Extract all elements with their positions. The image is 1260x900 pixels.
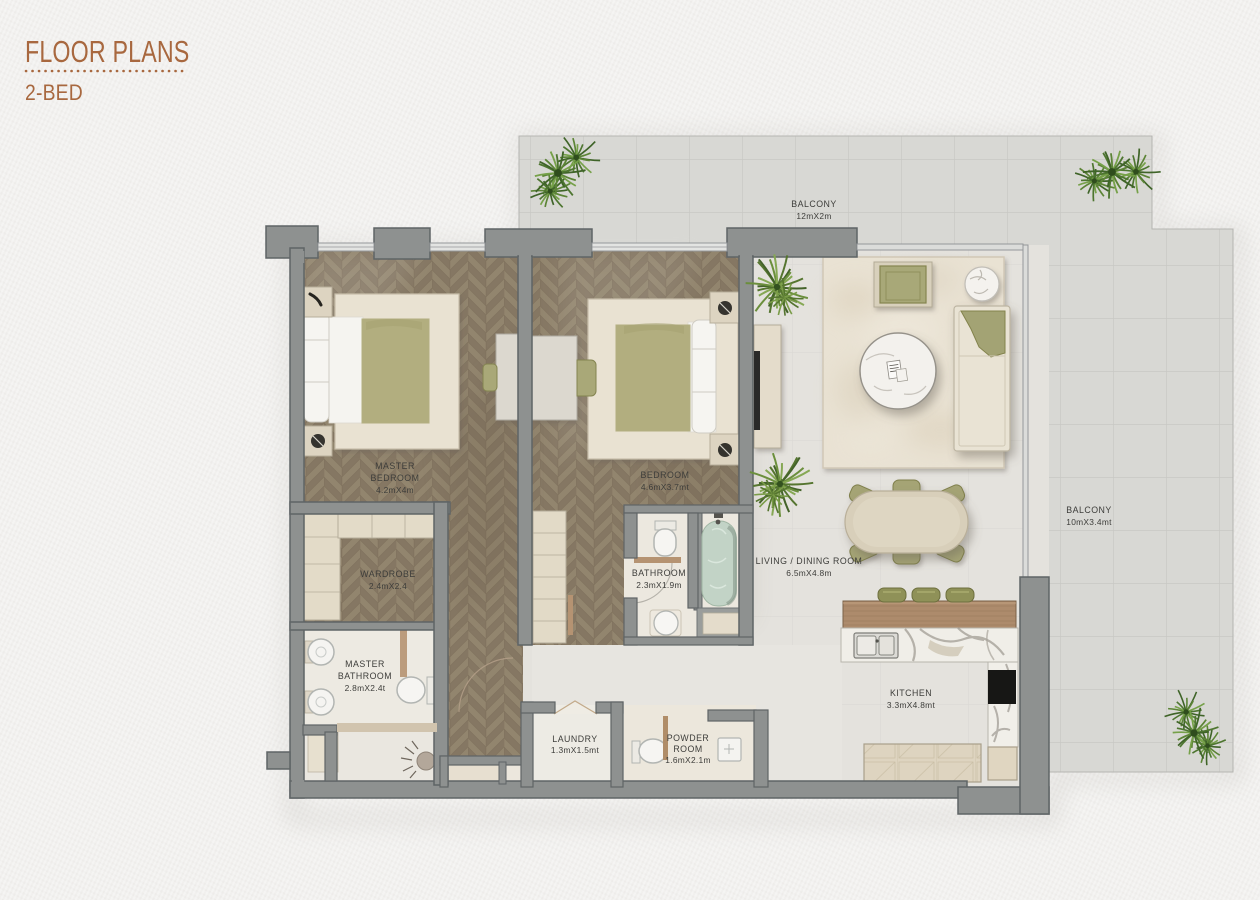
svg-text:6.5mX4.8m: 6.5mX4.8m — [786, 568, 832, 578]
svg-text:1.3mX1.5mt: 1.3mX1.5mt — [551, 745, 600, 755]
svg-text:MASTER: MASTER — [375, 461, 415, 471]
svg-text:2.3mX1.9m: 2.3mX1.9m — [636, 580, 682, 590]
svg-text:ROOM: ROOM — [673, 744, 702, 754]
svg-text:BALCONY: BALCONY — [791, 199, 837, 209]
svg-text:BALCONY: BALCONY — [1066, 505, 1112, 515]
svg-text:4.6mX3.7mt: 4.6mX3.7mt — [641, 482, 690, 492]
svg-text:BEDROOM: BEDROOM — [641, 470, 690, 480]
svg-text:2.8mX2.4t: 2.8mX2.4t — [345, 683, 386, 693]
svg-text:LAUNDRY: LAUNDRY — [552, 734, 597, 744]
svg-text:1.6mX2.1m: 1.6mX2.1m — [665, 755, 711, 765]
svg-text:BATHROOM: BATHROOM — [632, 568, 686, 578]
svg-text:10mX3.4mt: 10mX3.4mt — [1066, 517, 1112, 527]
svg-text:2.4mX2.4: 2.4mX2.4 — [369, 581, 407, 591]
svg-text:POWDER: POWDER — [667, 733, 710, 743]
svg-text:4.2mX4m: 4.2mX4m — [376, 485, 414, 495]
svg-text:WARDROBE: WARDROBE — [360, 569, 415, 579]
svg-text:KITCHEN: KITCHEN — [890, 688, 932, 698]
svg-text:MASTER: MASTER — [345, 659, 385, 669]
svg-text:BATHROOM: BATHROOM — [338, 671, 392, 681]
svg-text:BEDROOM: BEDROOM — [371, 473, 420, 483]
svg-text:3.3mX4.8mt: 3.3mX4.8mt — [887, 700, 936, 710]
svg-text:12mX2m: 12mX2m — [796, 211, 831, 221]
svg-text:LIVING / DINING ROOM: LIVING / DINING ROOM — [756, 556, 863, 566]
